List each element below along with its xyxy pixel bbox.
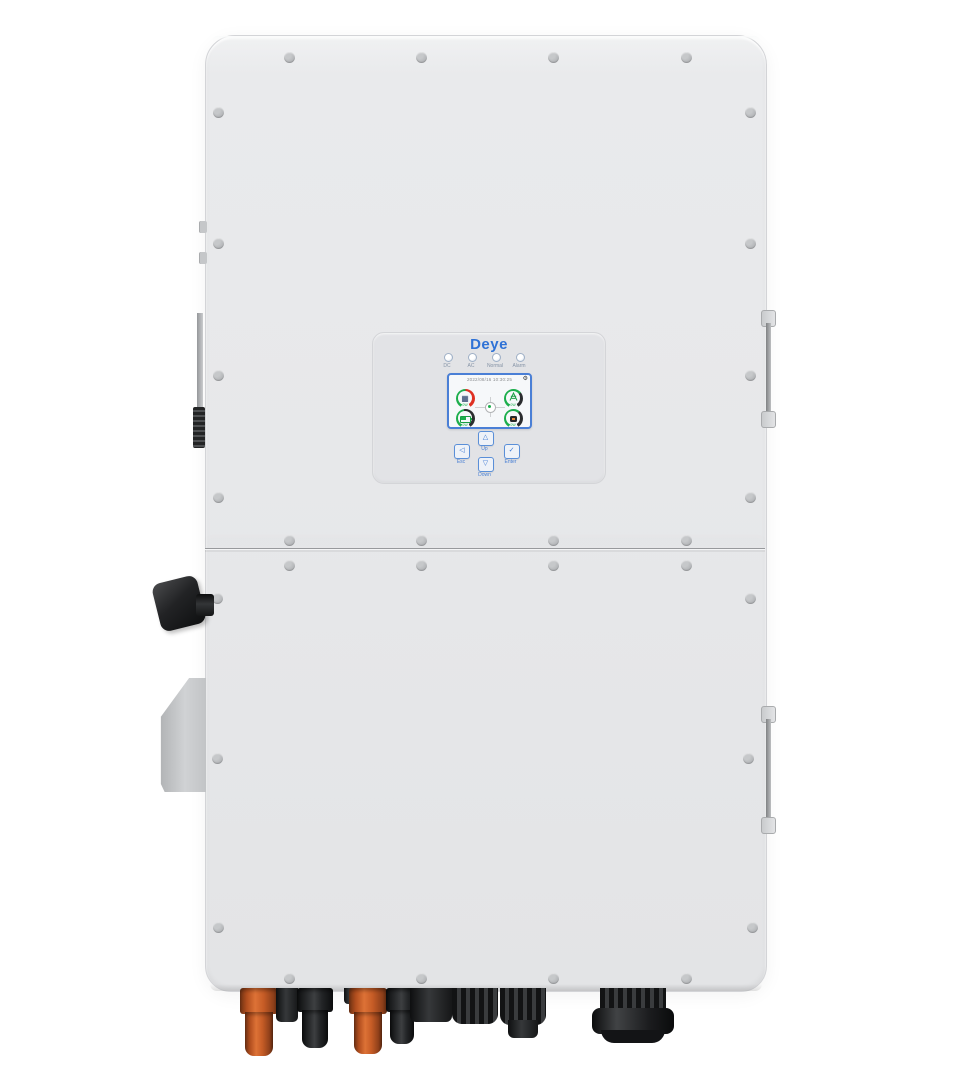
screw [284,52,295,63]
screw [548,535,559,546]
screw [681,52,692,63]
screw [747,922,758,933]
enter-button-label: Enter [496,459,526,465]
lcd-status-bar: 2022/08/16 10:30:25 [449,377,530,382]
led-label-alarm: Alarm [505,363,533,369]
pv-connector-negative-body [302,1010,328,1048]
screw [284,535,295,546]
led-ac [468,353,477,362]
screw [548,973,559,984]
screw [416,52,427,63]
home-load-icon [504,413,523,422]
enclosure-seam [205,548,765,552]
grid-pylon-icon [504,392,523,401]
led-normal [492,353,501,362]
pv-connector-positive-body [354,1012,382,1054]
enter-button[interactable]: ✓ [504,444,520,459]
left-side-rail [197,313,203,411]
screw [745,593,756,604]
screw [548,52,559,63]
led-dc [444,353,453,362]
screw [213,922,224,933]
screw [681,973,692,984]
screw [213,238,224,249]
screw [745,492,756,503]
connector-stub [276,988,298,1022]
pv-connector-positive-head [349,988,387,1014]
up-button-label: Up [470,446,500,452]
load-gauge: 0W [504,409,523,428]
grid-value: 0W [504,403,523,407]
screw [743,753,754,764]
screw [212,753,223,764]
settings-gear-icon: ⚙ [523,376,528,382]
battery-gauge: 0W [456,409,475,428]
screw [416,560,427,571]
cable-gland-extension [508,1020,538,1038]
pv-connector-negative-head [297,988,333,1012]
up-button[interactable]: △ [478,431,494,446]
left-hinge-bottom [199,252,207,264]
right-handle-upper [760,310,776,426]
inverter-body [205,35,767,992]
pv-value: 0W [456,403,475,407]
cable-gland-small [452,988,498,1024]
lcd-screen: 2022/08/16 10:30:25 ⚙ ▦ 0W 0W 0W 0W [447,373,532,429]
control-panel: Deye DC AC Normal Alarm 2022/08/16 10:30… [372,332,606,484]
led-alarm [516,353,525,362]
cable-gland-large-cap [601,1030,665,1043]
left-hinge-top [199,221,207,233]
battery-value: 0W [456,423,475,427]
esc-button[interactable]: ◁ [454,444,470,459]
screw [213,492,224,503]
screw [213,370,224,381]
screw [548,560,559,571]
battery-terminal-block [410,988,452,1022]
screw [284,973,295,984]
screw [284,560,295,571]
load-value: 0W [504,423,523,427]
side-mount-bracket [159,678,206,792]
battery-icon [456,414,475,423]
screw [416,535,427,546]
esc-button-label: Esc [446,459,476,465]
grid-gauge: 0W [504,389,523,408]
screw [213,107,224,118]
right-handle-lower [760,706,776,832]
pv-connector-positive-body [245,1012,273,1056]
product-photo-stage: Deye DC AC Normal Alarm 2022/08/16 10:30… [0,0,970,1080]
dc-switch-axle [196,594,214,616]
brand-logo: Deye [373,336,605,353]
energy-flow-hub-icon [485,402,496,413]
down-button[interactable]: ▽ [478,457,494,472]
solar-panel-icon: ▦ [456,392,475,403]
screw [745,107,756,118]
screw [416,973,427,984]
screw [745,370,756,381]
screw [681,560,692,571]
screw [681,535,692,546]
pv-gauge: ▦ 0W [456,389,475,408]
screw [745,238,756,249]
pv-connector-positive-head [240,988,278,1014]
down-button-label: Down [470,472,500,478]
left-side-connector [193,407,205,448]
